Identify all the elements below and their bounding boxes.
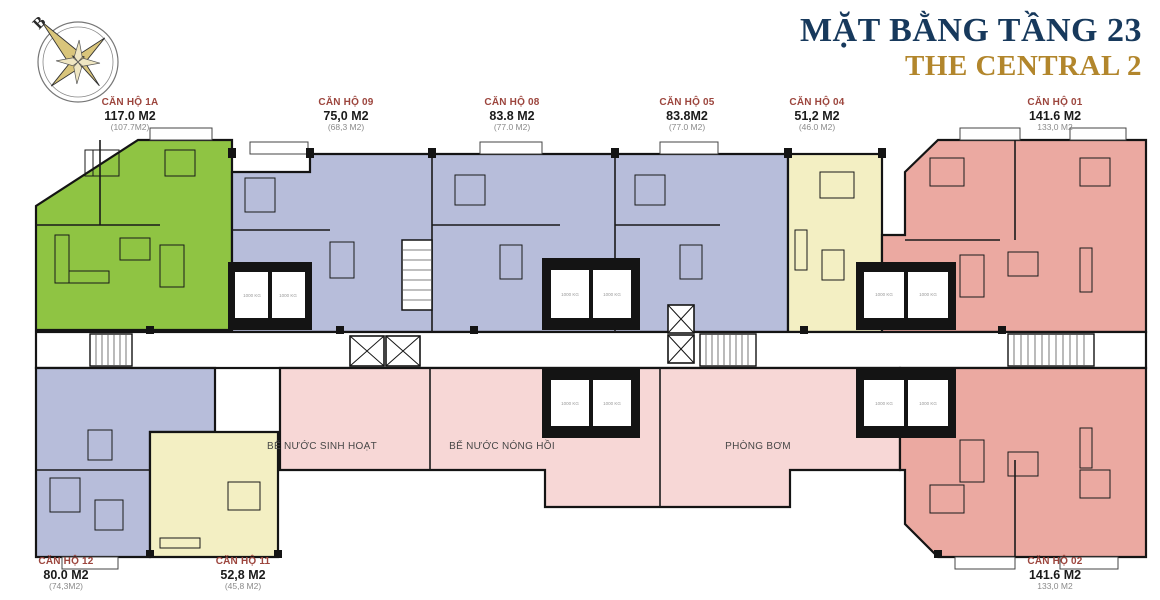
apartment-area: 52,8 M2 [216, 568, 271, 582]
elevator-capacity-label: 1000 KG [603, 401, 621, 406]
apartment-net-area: (77.0 M2) [659, 123, 714, 133]
elevator-bank-top-center: 1000 KG 1000 KG [542, 258, 640, 330]
apartment-area: 75,0 M2 [318, 109, 373, 123]
elevator-capacity-label: 1000 KG [561, 401, 579, 406]
technical-room-label-water-tank: BỂ NƯỚC SINH HOẠT [267, 441, 377, 452]
apartment-area: 141.6 M2 [1027, 568, 1082, 582]
apartment-area: 141.6 M2 [1027, 109, 1082, 123]
apartment-label-08: CĂN HỘ 08 83.8 M2 (77.0 M2) [484, 97, 539, 133]
apartment-label-12: CĂN HỘ 12 80.0 M2 (74,3M2) [38, 556, 93, 592]
apartment-zone-09-08-05 [232, 154, 788, 332]
elevator-capacity-label: 1000 KG [561, 292, 579, 297]
apartment-label-04: CĂN HỘ 04 51,2 M2 (46.0 M2) [789, 97, 844, 133]
apartment-name: CĂN HỘ 09 [318, 97, 373, 109]
apartment-name: CĂN HỘ 02 [1027, 556, 1082, 568]
apartment-name: CĂN HỘ 11 [216, 556, 271, 568]
apartment-label-1a: CĂN HỘ 1A 117.0 M2 (107.7M2) [102, 97, 159, 133]
apartment-label-05: CĂN HỘ 05 83.8M2 (77.0 M2) [659, 97, 714, 133]
floor-plan-page: B MẶT BẰNG TẦNG 23 THE CENTRAL 2 [0, 0, 1160, 600]
apartment-name: CĂN HỘ 08 [484, 97, 539, 109]
apartment-net-area: (74,3M2) [38, 582, 93, 592]
elevator-capacity-label: 1000 KG [875, 401, 893, 406]
apartment-label-09: CĂN HỘ 09 75,0 M2 (68,3 M2) [318, 97, 373, 133]
elevator-bank-bottom-right: 1000 KG 1000 KG [856, 368, 956, 438]
elevator-bank-top-left: 1000 KG 1000 KG [228, 262, 312, 330]
apartment-label-01: CĂN HỘ 01 141.6 M2 133,0 M2 [1027, 97, 1082, 133]
elevator-capacity-label: 1000 KG [875, 292, 893, 297]
apartment-net-area: 133,0 M2 [1027, 123, 1082, 133]
apartment-name: CĂN HỘ 04 [789, 97, 844, 109]
apartment-net-area: (107.7M2) [102, 123, 159, 133]
technical-room-label-hot-water-tank: BỂ NƯỚC NÓNG HỒI [449, 441, 555, 452]
apartment-net-area: 133,0 M2 [1027, 582, 1082, 592]
corridor [36, 332, 1146, 368]
apartment-area: 51,2 M2 [789, 109, 844, 123]
elevator-capacity-label: 1000 KG [603, 292, 621, 297]
apartment-area: 83.8 M2 [484, 109, 539, 123]
apartment-net-area: (45,8 M2) [216, 582, 271, 592]
elevator-capacity-label: 1000 KG [919, 401, 937, 406]
stair-hatch-left [90, 334, 132, 366]
apartment-label-02: CĂN HỘ 02 141.6 M2 133,0 M2 [1027, 556, 1082, 592]
apartment-area: 80.0 M2 [38, 568, 93, 582]
apartment-net-area: (68,3 M2) [318, 123, 373, 133]
apartment-net-area: (46.0 M2) [789, 123, 844, 133]
elevator-capacity-label: 1000 KG [919, 292, 937, 297]
elevator-capacity-label: 1000 KG [279, 293, 297, 298]
apartment-name: CĂN HỘ 05 [659, 97, 714, 109]
technical-room-label-pump-room: PHÒNG BƠM [725, 441, 791, 452]
apartment-name: CĂN HỘ 01 [1027, 97, 1082, 109]
apartment-area: 117.0 M2 [102, 109, 159, 123]
elevator-bank-top-right: 1000 KG 1000 KG [856, 262, 956, 330]
elevator-capacity-label: 1000 KG [243, 293, 261, 298]
stair-hatch-center [700, 334, 756, 366]
utility-shaft [402, 240, 432, 310]
stair-hatch-right [1008, 334, 1094, 366]
elevator-bank-bottom-center: 1000 KG 1000 KG [542, 368, 640, 438]
floor-plan-svg: 1000 KG 1000 KG 1000 KG 1000 KG 1000 KG … [0, 0, 1160, 600]
apartment-net-area: (77.0 M2) [484, 123, 539, 133]
apartment-name: CĂN HỘ 1A [102, 97, 159, 109]
apartment-label-11: CĂN HỘ 11 52,8 M2 (45,8 M2) [216, 556, 271, 592]
apartment-area: 83.8M2 [659, 109, 714, 123]
apartment-name: CĂN HỘ 12 [38, 556, 93, 568]
